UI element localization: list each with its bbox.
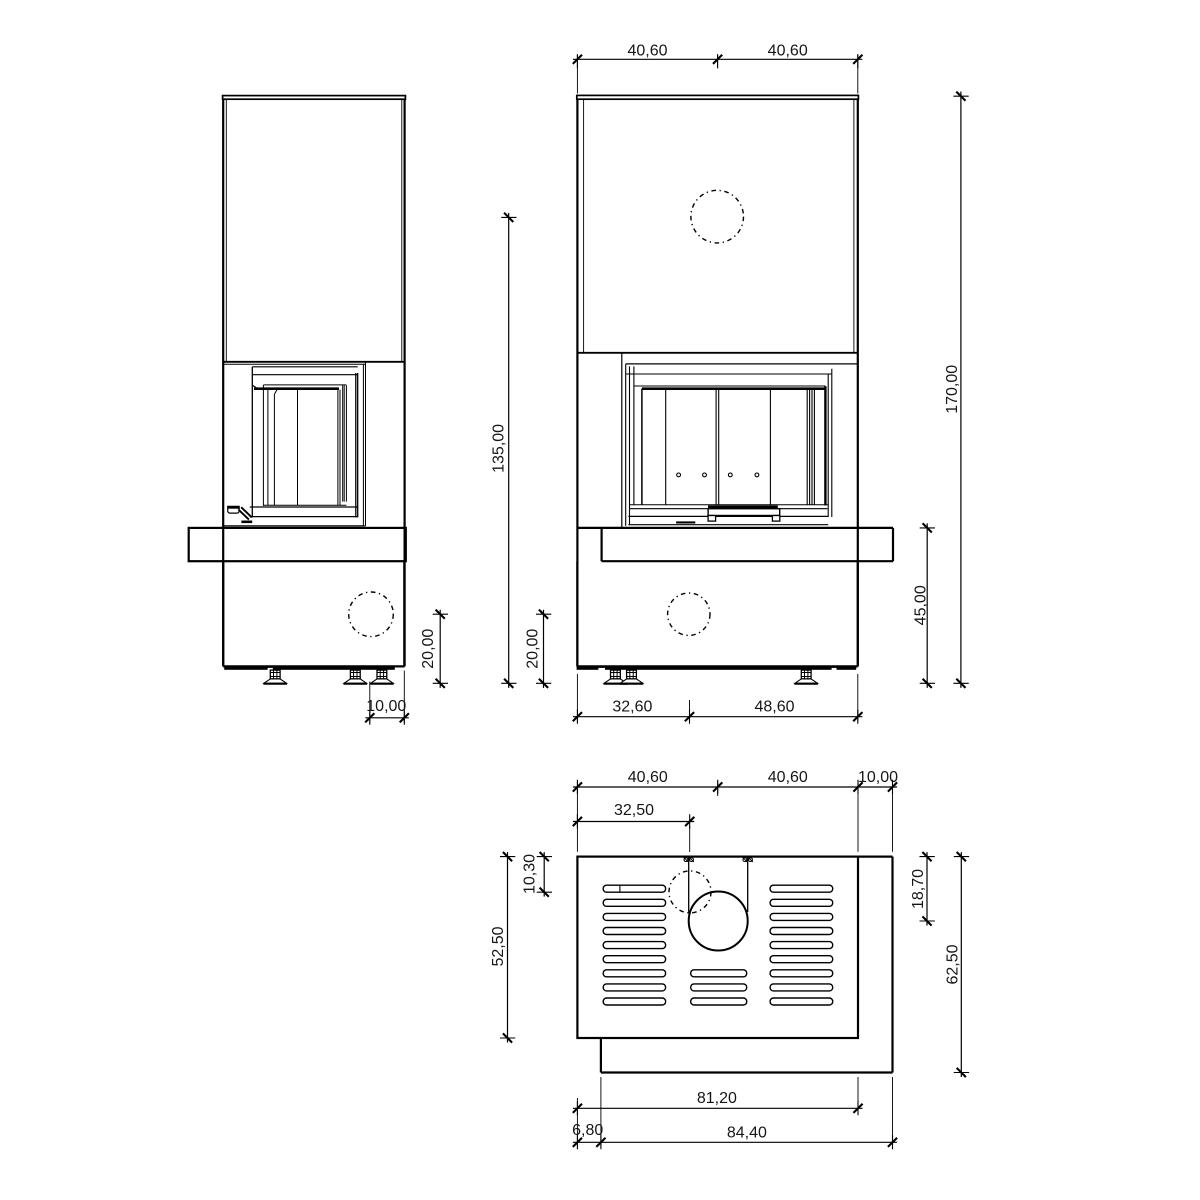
svg-text:32,60: 32,60 — [612, 698, 652, 715]
svg-text:81,20: 81,20 — [697, 1090, 737, 1107]
svg-text:135,00: 135,00 — [490, 424, 507, 473]
svg-text:40,60: 40,60 — [627, 42, 667, 59]
svg-text:40,60: 40,60 — [768, 42, 808, 59]
svg-text:10,00: 10,00 — [858, 769, 898, 786]
svg-text:20,00: 20,00 — [524, 629, 541, 669]
svg-text:6,80: 6,80 — [572, 1122, 603, 1139]
svg-text:84,40: 84,40 — [727, 1124, 767, 1141]
svg-text:45,00: 45,00 — [913, 585, 930, 625]
svg-text:18,70: 18,70 — [910, 869, 927, 909]
svg-text:20,00: 20,00 — [420, 629, 437, 669]
svg-text:32,50: 32,50 — [614, 802, 654, 819]
svg-text:48,60: 48,60 — [754, 698, 794, 715]
svg-text:40,60: 40,60 — [628, 769, 668, 786]
svg-text:170,00: 170,00 — [944, 365, 961, 414]
svg-text:10,00: 10,00 — [366, 698, 406, 715]
svg-text:40,60: 40,60 — [768, 769, 808, 786]
svg-text:52,50: 52,50 — [490, 926, 507, 966]
svg-text:10,30: 10,30 — [522, 854, 539, 894]
svg-text:62,50: 62,50 — [944, 944, 961, 984]
